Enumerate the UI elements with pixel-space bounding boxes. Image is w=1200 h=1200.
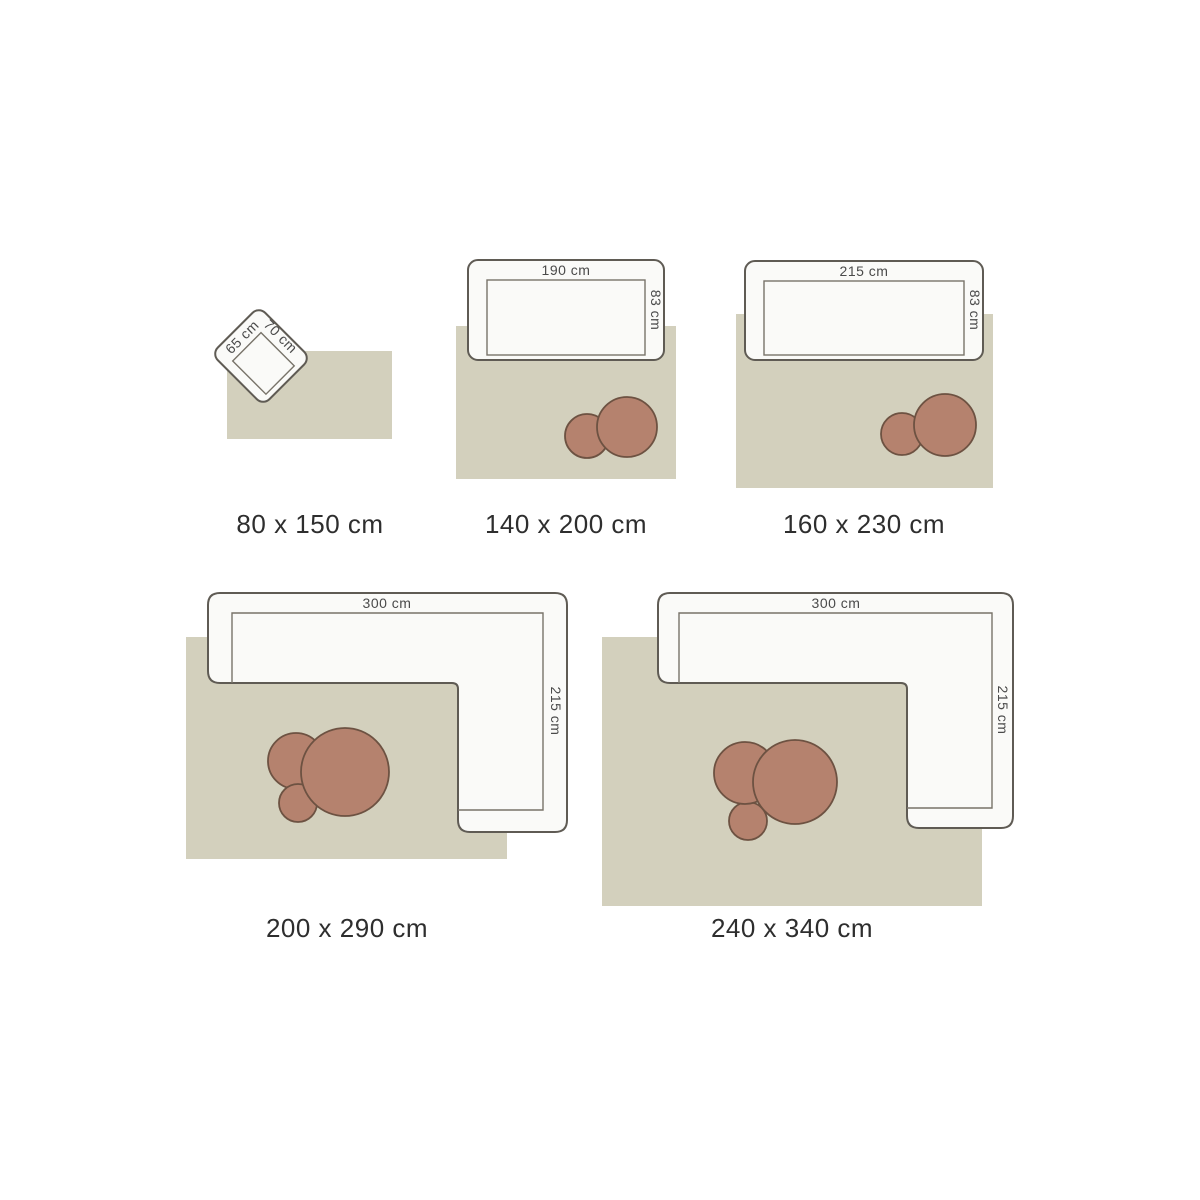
size-option-140x200: 190 cm 83 cm 140 x 200 cm xyxy=(456,260,676,539)
size-guide-diagram: 65 cm 70 cm 80 x 150 cm 190 cm 83 cm 140… xyxy=(0,0,1200,1200)
rug-size-label: 160 x 230 cm xyxy=(783,509,945,539)
sofa-depth-label: 83 cm xyxy=(967,290,983,331)
size-option-200x290: 300 cm 215 cm 200 x 290 cm xyxy=(186,593,567,943)
rug-size-label: 140 x 200 cm xyxy=(485,509,647,539)
coffee-table-large-icon xyxy=(753,740,837,824)
coffee-table-large-icon xyxy=(914,394,976,456)
rug-size-label: 80 x 150 cm xyxy=(236,509,383,539)
sofa-width-label: 215 cm xyxy=(840,263,889,279)
size-option-160x230: 215 cm 83 cm 160 x 230 cm xyxy=(736,261,993,539)
coffee-table-large-icon xyxy=(597,397,657,457)
size-option-80x150: 65 cm 70 cm 80 x 150 cm xyxy=(212,305,392,539)
corner-sofa-width-label: 300 cm xyxy=(812,595,861,611)
coffee-table-large-icon xyxy=(301,728,389,816)
sofa-icon: 215 cm 83 cm xyxy=(745,261,983,360)
sofa-width-label: 190 cm xyxy=(542,262,591,278)
rug-size-label: 200 x 290 cm xyxy=(266,913,428,943)
size-option-240x340: 300 cm 215 cm 240 x 340 cm xyxy=(602,593,1013,943)
sofa-depth-label: 83 cm xyxy=(648,290,664,331)
sofa-icon: 190 cm 83 cm xyxy=(468,260,664,360)
rug-size-guide: 65 cm 70 cm 80 x 150 cm 190 cm 83 cm 140… xyxy=(0,0,1200,1200)
corner-sofa-width-label: 300 cm xyxy=(363,595,412,611)
corner-sofa-depth-label: 215 cm xyxy=(548,687,564,736)
corner-sofa-depth-label: 215 cm xyxy=(995,686,1011,735)
rug-size-label: 240 x 340 cm xyxy=(711,913,873,943)
